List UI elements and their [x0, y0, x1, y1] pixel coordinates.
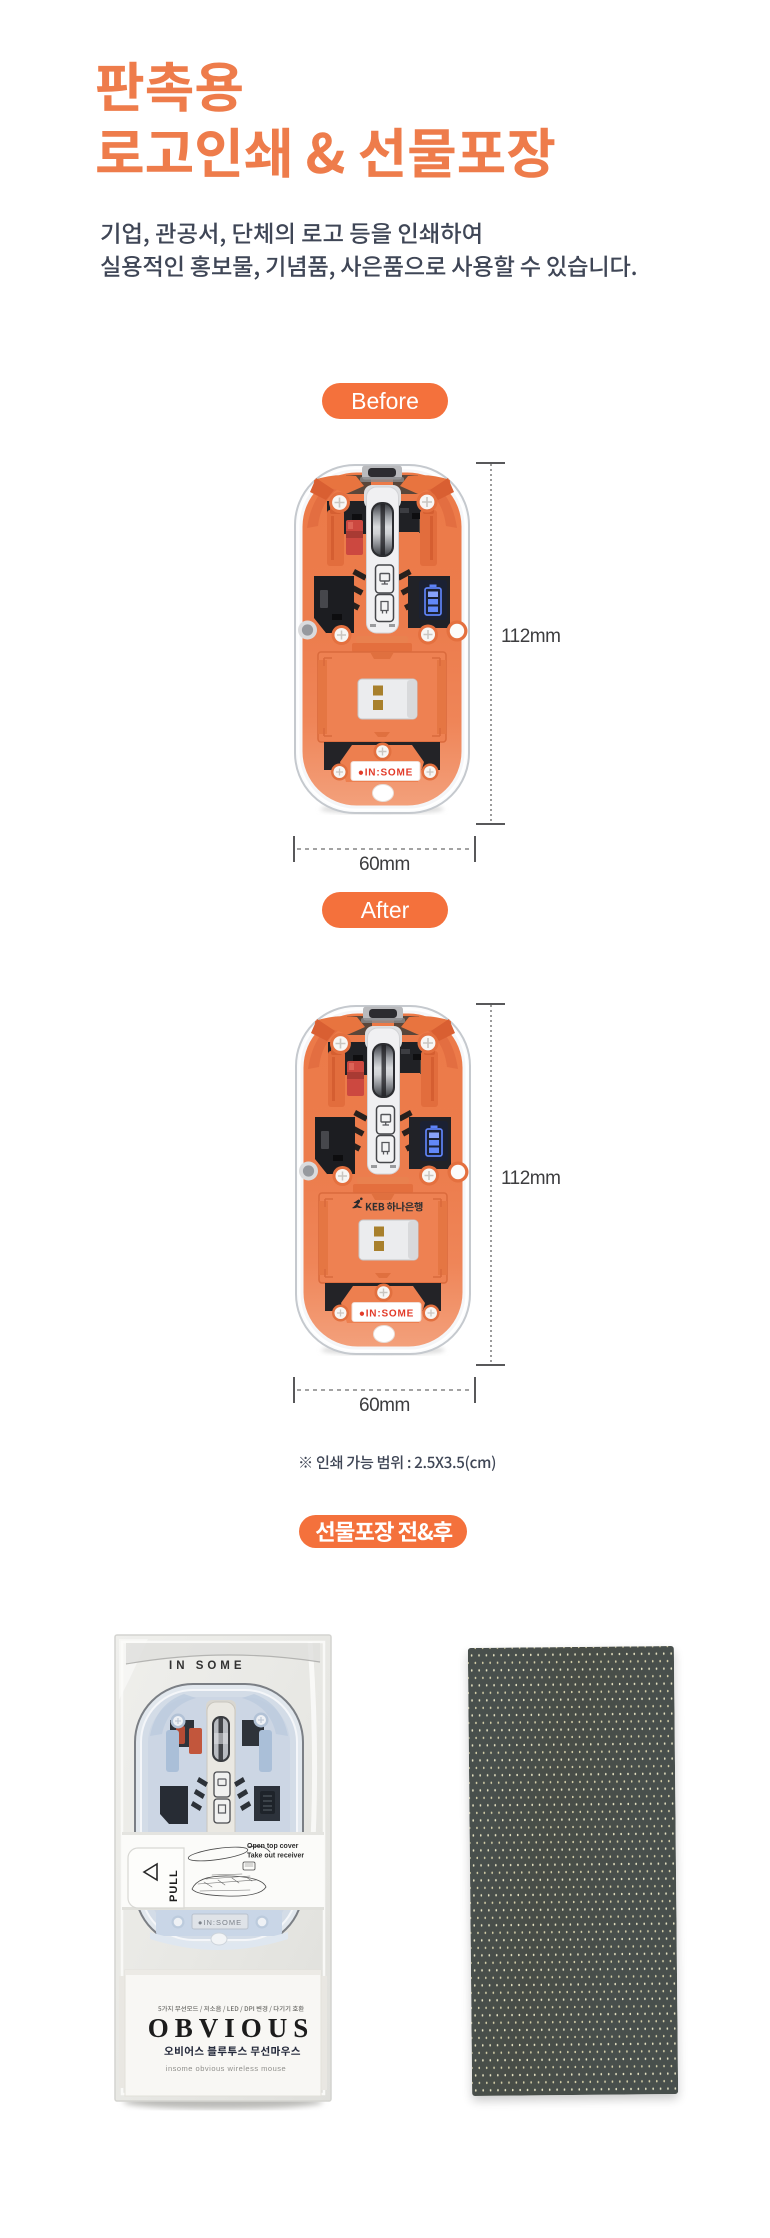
- svg-text:OBVIOUS: OBVIOUS: [148, 2013, 315, 2043]
- svg-text:●IN:SOME: ●IN:SOME: [198, 1918, 242, 1927]
- svg-text:Take out receiver: Take out receiver: [247, 1853, 304, 1860]
- svg-text:Open top cover: Open top cover: [247, 1843, 299, 1850]
- svg-text:●IN:SOME: ●IN:SOME: [359, 1309, 414, 1320]
- svg-text:IN SOME: IN SOME: [169, 1660, 246, 1672]
- svg-text:insome obvious wireless mouse: insome obvious wireless mouse: [166, 2064, 286, 2073]
- svg-text:PULL: PULL: [168, 1869, 180, 1902]
- svg-text:●IN:SOME: ●IN:SOME: [358, 768, 413, 779]
